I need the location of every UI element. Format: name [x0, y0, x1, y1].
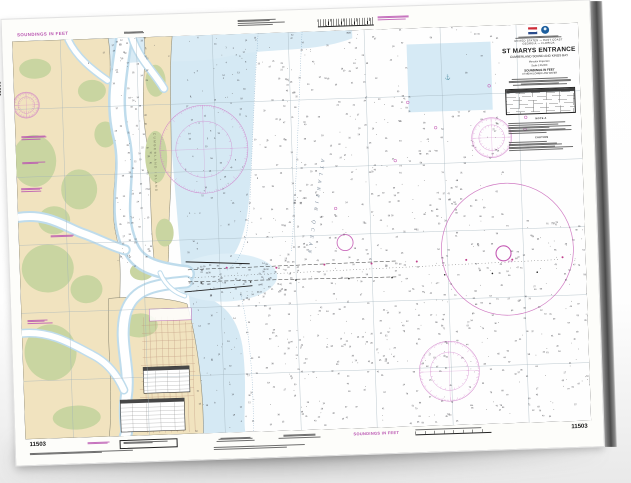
production-note-left: [30, 448, 150, 456]
top-margin-magenta-note: [378, 14, 412, 21]
land-note-magenta: [27, 318, 53, 324]
note-a-body: [508, 121, 574, 133]
authorities-paragraph: [507, 77, 573, 86]
land-note-magenta: [22, 160, 48, 165]
land-note-magenta: [21, 134, 47, 140]
caution-title: CAUTION: [503, 134, 581, 140]
chart-number-bottom-right: 11503: [571, 424, 588, 431]
noaa-flag-icon: [528, 27, 537, 34]
svg-text:71: 71: [587, 315, 590, 317]
entrance-buoy-label: STM: [508, 261, 513, 263]
caution-body: [509, 140, 575, 151]
bottom-center-note-2: [273, 432, 325, 439]
chart-number-bottom-left: 11503: [30, 442, 47, 449]
soundings-note-top: SOUNDINGS IN FEET: [17, 31, 69, 38]
tide-table: [505, 87, 576, 115]
edition-note: [238, 17, 296, 26]
photo-background: SOUNDINGS IN FEET 11503: [0, 0, 631, 483]
soundings-note-bottom: SOUNDINGS IN FEET: [353, 430, 399, 437]
svg-text:⚓: ⚓: [444, 74, 450, 81]
blue-area-note: ⚓: [407, 42, 493, 113]
top-margin-note: [124, 30, 150, 35]
note-a-title: NOTE A: [502, 116, 580, 122]
nautical-chart-print: SOUNDINGS IN FEET 11503: [2, 0, 604, 465]
bottom-center-note-1: [213, 436, 257, 443]
bar-scale: [415, 426, 491, 435]
land-note-magenta: [51, 233, 77, 238]
chart-face: SOUNDINGS IN FEET 11503: [2, 0, 604, 465]
title-block: UNITED STATES — EAST COAST GEORGIA — FLO…: [499, 25, 581, 152]
logarithmic-speed-scale: [318, 18, 374, 28]
production-note-center: [214, 443, 310, 450]
noaa-seal-icon: [541, 26, 549, 34]
land-note-magenta: [21, 186, 47, 192]
bottom-magenta-note: [88, 440, 114, 445]
chart-number-left-vertical: 11503: [0, 81, 2, 96]
